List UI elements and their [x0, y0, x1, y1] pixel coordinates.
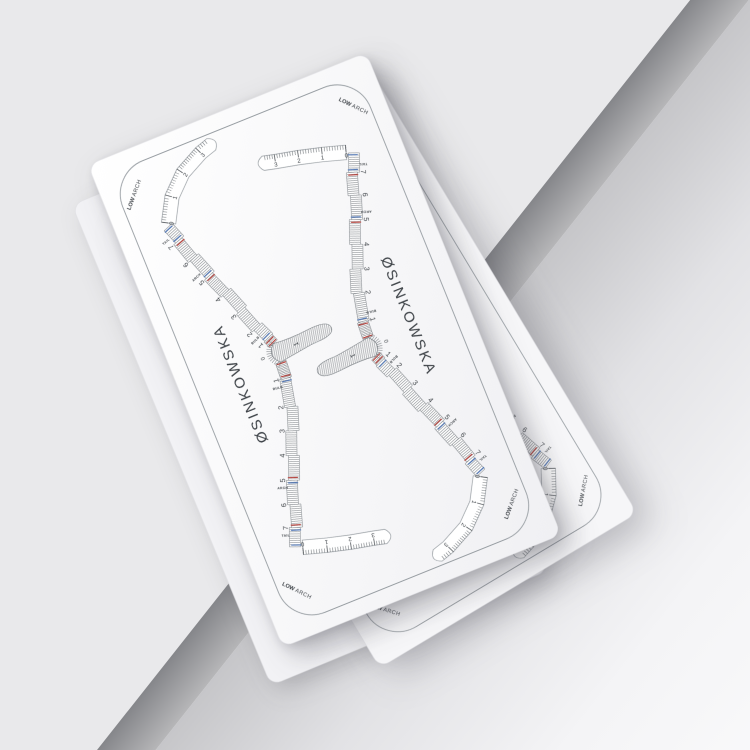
paper-stack: 7TAIL65ARCH4321BULB7TAIL65ARCH4321BULB7T…: [0, 0, 750, 750]
scene: 7TAIL65ARCH4321BULB7TAIL65ARCH4321BULB7T…: [0, 0, 750, 750]
